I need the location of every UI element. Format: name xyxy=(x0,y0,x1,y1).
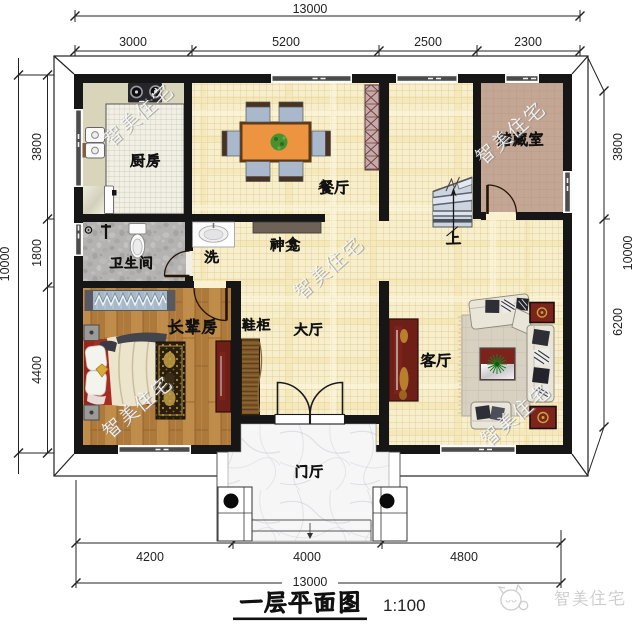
svg-text:6200: 6200 xyxy=(611,308,625,336)
svg-text:3000: 3000 xyxy=(119,35,147,49)
svg-text:2500: 2500 xyxy=(414,35,442,49)
svg-text:4800: 4800 xyxy=(450,550,478,564)
svg-text:4400: 4400 xyxy=(30,356,44,384)
svg-text:3800: 3800 xyxy=(30,133,44,161)
svg-text:13000: 13000 xyxy=(293,575,328,589)
svg-text:2300: 2300 xyxy=(514,35,542,49)
svg-text:10000: 10000 xyxy=(621,236,635,271)
svg-text:1:100: 1:100 xyxy=(383,596,426,615)
svg-text:5200: 5200 xyxy=(272,35,300,49)
svg-text:10000: 10000 xyxy=(0,247,12,282)
svg-text:1800: 1800 xyxy=(30,239,44,267)
svg-text:4000: 4000 xyxy=(293,550,321,564)
svg-text:3800: 3800 xyxy=(611,133,625,161)
svg-text:13000: 13000 xyxy=(293,2,328,16)
svg-text:4200: 4200 xyxy=(136,550,164,564)
